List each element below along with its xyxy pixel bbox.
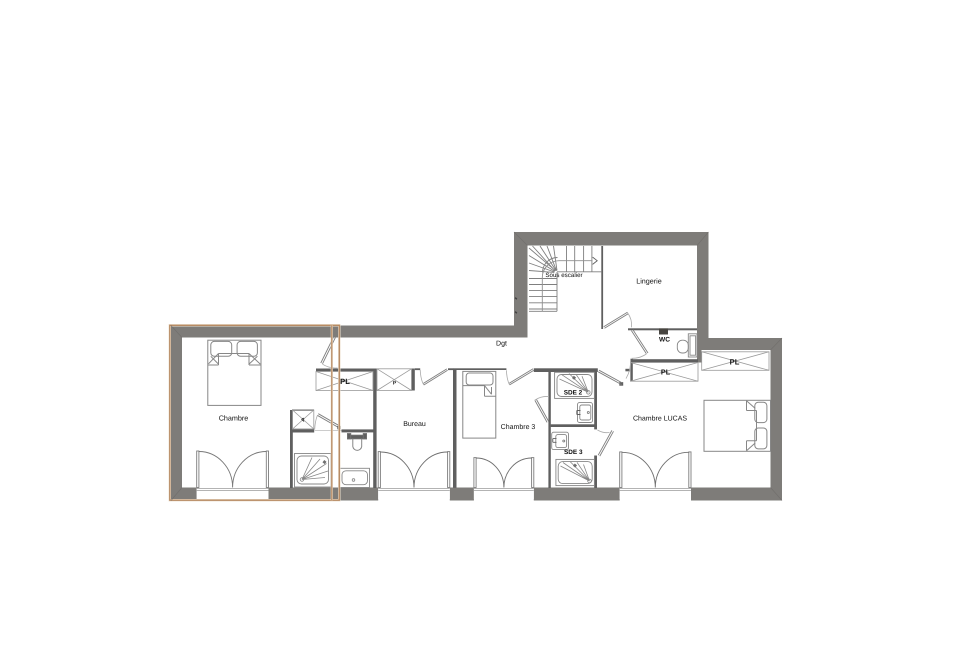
svg-text:PL: PL — [661, 368, 671, 377]
svg-text:Lingerie: Lingerie — [636, 277, 662, 286]
svg-text:WC: WC — [659, 336, 670, 343]
svg-text:SDE 2: SDE 2 — [564, 390, 583, 397]
svg-text:Dgt: Dgt — [496, 340, 507, 347]
svg-text:PL: PL — [340, 377, 350, 386]
svg-text:Chambre: Chambre — [219, 414, 249, 423]
svg-text:SDE 3: SDE 3 — [564, 449, 583, 456]
svg-text:Bureau: Bureau — [403, 421, 426, 428]
svg-text:PL: PL — [730, 357, 740, 366]
svg-text:Chambre LUCAS: Chambre LUCAS — [633, 414, 687, 422]
svg-text:Chambre 3: Chambre 3 — [501, 423, 536, 431]
svg-text:Sous escalier: Sous escalier — [545, 272, 582, 279]
